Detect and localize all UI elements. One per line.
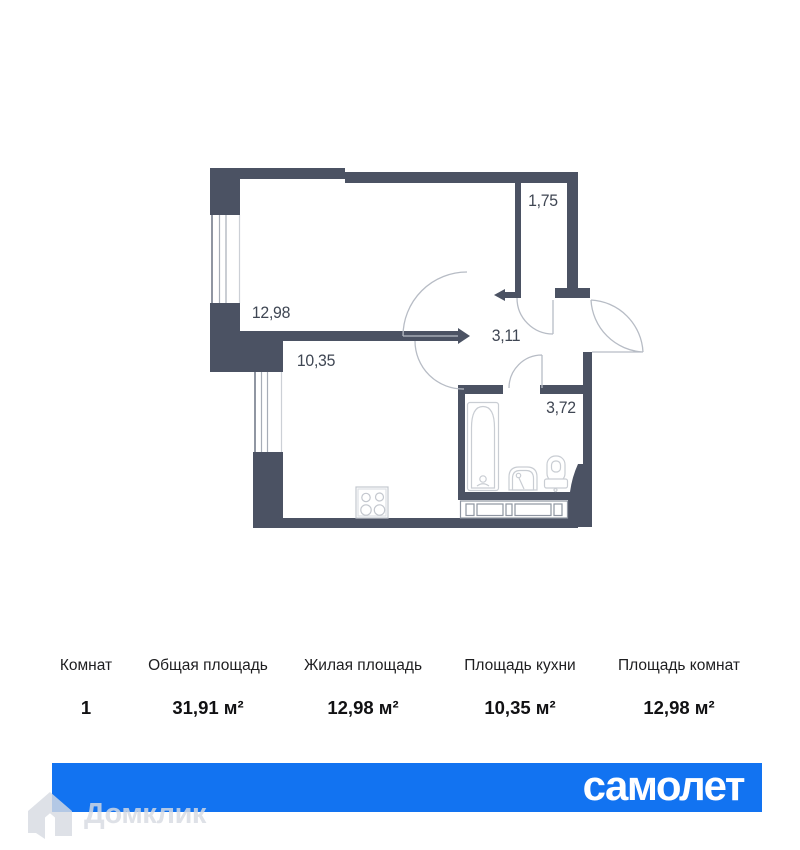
stat-header: Комнат <box>40 657 132 675</box>
bathroom-door-arc <box>509 355 542 388</box>
stat-value: 1 <box>40 697 132 719</box>
wardrobe-door-arc <box>517 298 553 334</box>
brand-name: самолет <box>583 762 744 810</box>
stat-value: 12,98 м² <box>598 697 760 719</box>
kitchen-door-arc <box>415 341 464 389</box>
sink-icon <box>509 467 537 490</box>
stat-value: 12,98 м² <box>284 697 442 719</box>
door-opening-arrow <box>458 328 470 344</box>
room-area-label-living: 12,98 <box>252 303 290 323</box>
house-icon <box>22 784 78 839</box>
room-area-label-kitchen: 10,35 <box>297 351 335 371</box>
toilet-icon <box>545 456 568 492</box>
window-kitchen <box>253 372 283 452</box>
stat-value: 31,91 м² <box>132 697 284 719</box>
stat-rooms-area: Площадь комнат 12,98 м² <box>598 657 760 719</box>
bathtub-icon <box>468 403 499 491</box>
stove-icon <box>356 487 388 518</box>
door-opening-arrow <box>494 289 505 301</box>
floorplan-card: 12,98 10,35 3,11 1,75 3,72 Комнат 1 Обща… <box>0 0 800 850</box>
domclick-watermark: Домклик <box>22 784 206 839</box>
kitchen-counter <box>461 501 568 518</box>
room-area-label-bathroom: 3,72 <box>546 398 576 418</box>
stat-rooms: Комнат 1 <box>40 657 132 719</box>
stat-header: Площадь кухни <box>442 657 598 675</box>
watermark-label: Домклик <box>84 798 206 831</box>
stat-living-area: Жилая площадь 12,98 м² <box>284 657 442 719</box>
floor-plan <box>0 0 800 850</box>
stat-total-area: Общая площадь 31,91 м² <box>132 657 284 719</box>
entry-door-arc <box>591 300 643 352</box>
stat-header: Площадь комнат <box>598 657 760 675</box>
living-door-arc <box>403 272 467 336</box>
door-arcs <box>403 272 643 389</box>
room-area-label-hallway: 3,11 <box>492 326 520 346</box>
window-living <box>210 215 240 303</box>
stat-kitchen-area: Площадь кухни 10,35 м² <box>442 657 598 719</box>
duct-corner <box>570 464 585 492</box>
room-area-label-wardrobe: 1,75 <box>528 191 558 211</box>
area-stats-table: Комнат 1 Общая площадь 31,91 м² Жилая пл… <box>40 657 760 719</box>
stat-value: 10,35 м² <box>442 697 598 719</box>
stat-header: Жилая площадь <box>284 657 442 675</box>
stat-header: Общая площадь <box>132 657 284 675</box>
